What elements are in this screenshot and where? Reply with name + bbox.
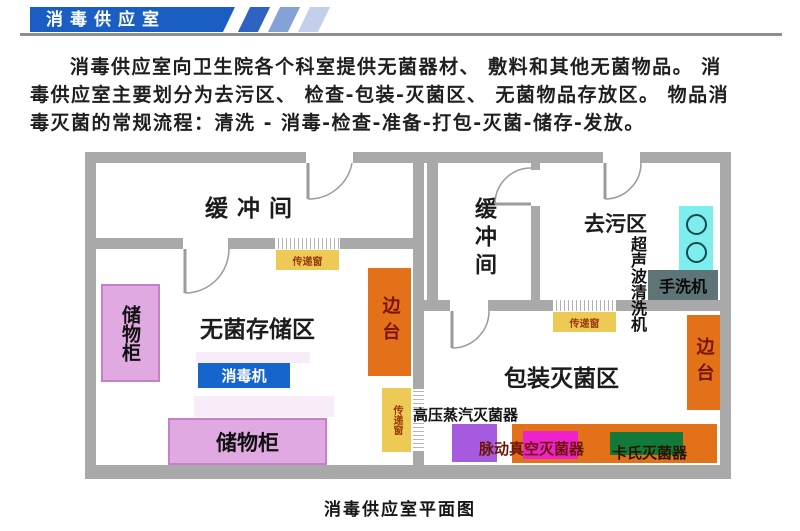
figure-caption: 消毒供应室平面图 — [0, 495, 800, 520]
intro-line: 消毒供应室向卫生院各个科室提供无菌器材、 敷料和其他无菌物品。 消 — [30, 53, 780, 81]
door-arc — [452, 311, 489, 348]
header-divider — [20, 33, 782, 36]
banner-stripe-icon — [298, 7, 330, 32]
banner-stripe-icon — [238, 7, 270, 32]
wall-inner — [531, 206, 540, 302]
room-label-buffer-left: 缓冲间 — [205, 189, 301, 223]
hand-washer-box: 手洗机 — [648, 270, 718, 300]
room-label-packaging: 包装灭菌区 — [504, 359, 619, 393]
room-label-sterile-storage: 无菌存储区 — [200, 310, 315, 344]
wall-bottom — [85, 465, 731, 479]
wall-right — [720, 152, 731, 479]
door-arc — [605, 163, 641, 199]
wall-top — [640, 152, 731, 163]
window-hatch — [553, 300, 616, 311]
side-table-right: 边台 — [687, 315, 720, 410]
wall-inner — [340, 238, 413, 249]
document-page: 消毒供应室 消毒供应室向卫生院各个科室提供无菌器材、 敷料和其他无菌物品。 消 … — [0, 0, 800, 531]
door-arc — [185, 249, 229, 293]
disinfector-box: 消毒机 — [198, 363, 290, 388]
wall-top — [353, 152, 603, 163]
intro-line: 毒供应室主要划分为去污区、 检查-包装-灭菌区、 无菌物品存放区。 物品消 — [30, 81, 780, 109]
title-banner: 消毒供应室 — [30, 7, 235, 32]
table-shelf — [196, 352, 310, 363]
wall-inner — [488, 300, 553, 311]
wall-divider — [427, 163, 438, 311]
label-pulse-vacuum-sterilizer: 脉动真空灭菌器 — [479, 438, 584, 459]
sink-unit — [679, 206, 713, 270]
door-arc — [495, 168, 531, 204]
wall-inner — [413, 300, 450, 311]
wall-inner — [96, 238, 183, 249]
banner-title: 消毒供应室 — [46, 9, 166, 31]
pass-window-right: 传递窗 — [553, 312, 616, 332]
wall-divider — [413, 163, 424, 389]
room-label-decontamination: 去污区 — [584, 208, 647, 238]
label-cassette-sterilizer: 卡氏灭菌器 — [612, 442, 687, 463]
wall-inner — [228, 238, 275, 249]
wall-top — [85, 152, 306, 163]
wall-divider — [413, 451, 424, 465]
pass-window-left: 传递窗 — [276, 250, 339, 270]
sink-basin-icon — [686, 242, 707, 263]
door-arc — [308, 163, 352, 199]
side-table-left: 边台 — [368, 268, 411, 376]
window-hatch — [275, 238, 340, 249]
intro-line: 毒灭菌的常规流程：清洗 - 消毒-检查-准备-打包-灭菌-储存-发放。 — [30, 109, 780, 137]
room-label-buffer-right: 缓冲间 — [467, 197, 499, 281]
banner-stripe-icon — [268, 7, 300, 32]
wall-inner — [531, 163, 540, 170]
storage-cabinet-bottom: 储物柜 — [168, 418, 327, 465]
pass-window-mid: 传递窗 — [382, 388, 411, 452]
sink-basin-icon — [686, 214, 707, 235]
table-shelf — [194, 396, 334, 417]
wall-left — [85, 152, 96, 479]
label-ultrasonic-cleaner: 超声波清洗机 — [628, 236, 646, 332]
storage-cabinet-left: 储物柜 — [101, 284, 160, 382]
intro-paragraph: 消毒供应室向卫生院各个科室提供无菌器材、 敷料和其他无菌物品。 消 毒供应室主要… — [30, 53, 780, 137]
label-autoclave: 高压蒸汽灭菌器 — [413, 404, 518, 425]
